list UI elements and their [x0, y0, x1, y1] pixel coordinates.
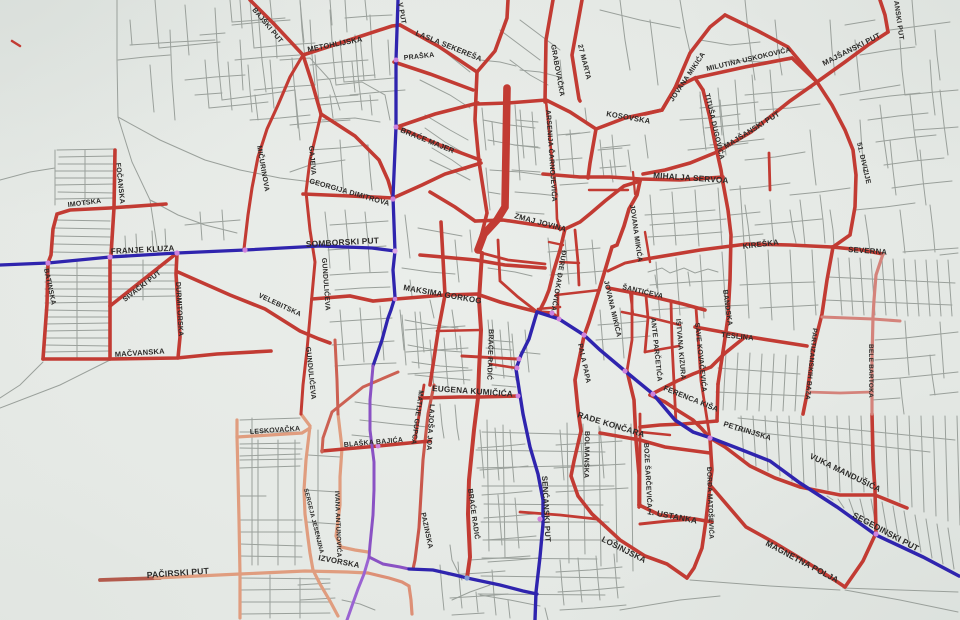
svg-text:27 MARTA: 27 MARTA — [576, 44, 592, 81]
svg-text:BATINSKA: BATINSKA — [42, 268, 57, 306]
svg-text:MATIJE GUPCA: MATIJE GUPCA — [409, 390, 424, 445]
svg-text:ARSENIJA ČARNOJEVIĆA: ARSENIJA ČARNOJEVIĆA — [544, 110, 559, 202]
svg-text:LAJOŠA JOA: LAJOŠA JOA — [425, 404, 437, 451]
svg-text:PAČIRSKI PUT: PAČIRSKI PUT — [146, 565, 210, 580]
svg-text:METOHLIJSKA: METOHLIJSKA — [307, 34, 364, 54]
svg-text:SEVERNA: SEVERNA — [848, 245, 888, 257]
svg-text:VELEBITSKA: VELEBITSKA — [257, 292, 302, 318]
svg-text:JOVANA MIKIĆA: JOVANA MIKIĆA — [628, 204, 645, 263]
svg-text:GUNDULIĆEVA: GUNDULIĆEVA — [320, 258, 333, 312]
svg-text:MAGNETNA POLJA: MAGNETNA POLJA — [764, 538, 840, 585]
svg-text:MIHALJA SERVOA: MIHALJA SERVOA — [653, 171, 729, 185]
svg-text:MAJŠANSKI PUT: MAJŠANSKI PUT — [821, 31, 882, 68]
svg-text:BOZE ŠARČEVIĆA: BOZE ŠARČEVIĆA — [642, 443, 654, 509]
svg-text:MIČURINOVA: MIČURINOVA — [255, 145, 272, 192]
svg-text:PAZINSKA: PAZINSKA — [419, 512, 434, 550]
svg-text:BOLMANSKA: BOLMANSKA — [582, 431, 590, 478]
svg-text:BELE BARTOKA: BELE BARTOKA — [867, 344, 874, 398]
svg-text:BAJŠKI PUT: BAJŠKI PUT — [250, 6, 285, 46]
svg-text:PRAŠKA: PRAŠKA — [403, 50, 435, 62]
svg-text:BANDSKA: BANDSKA — [721, 289, 733, 326]
svg-text:SAVE KOVAČEVIĆA: SAVE KOVAČEVIĆA — [693, 322, 709, 392]
svg-text:ĐORĐA MATOŠEVIĆA: ĐORĐA MATOŠEVIĆA — [705, 467, 717, 540]
svg-text:DURMITORSKA: DURMITORSKA — [174, 282, 184, 337]
svg-text:IŠTVANA KIZURA: IŠTVANA KIZURA — [674, 318, 688, 380]
svg-text:IVANA ANTUNOVIĆA: IVANA ANTUNOVIĆA — [333, 491, 344, 558]
svg-text:PARTIZANSKIH BAZA: PARTIZANSKIH BAZA — [803, 328, 818, 401]
svg-text:SEGEDINSKI PUT: SEGEDINSKI PUT — [851, 510, 921, 554]
svg-text:LOŠINJSKA: LOŠINJSKA — [600, 533, 648, 565]
svg-text:GUNDULIĆEVA: GUNDULIĆEVA — [304, 346, 318, 400]
svg-text:GRABOVAČKA: GRABOVAČKA — [549, 44, 567, 97]
svg-text:FERENCA KIŠA: FERENCA KIŠA — [662, 384, 720, 414]
svg-text:GEORGIJA DIMITROVA: GEORGIJA DIMITROVA — [308, 176, 390, 208]
svg-text:KIREŠKA: KIREŠKA — [742, 238, 779, 251]
svg-text:ANSKI PUT: ANSKI PUT — [892, 0, 905, 41]
